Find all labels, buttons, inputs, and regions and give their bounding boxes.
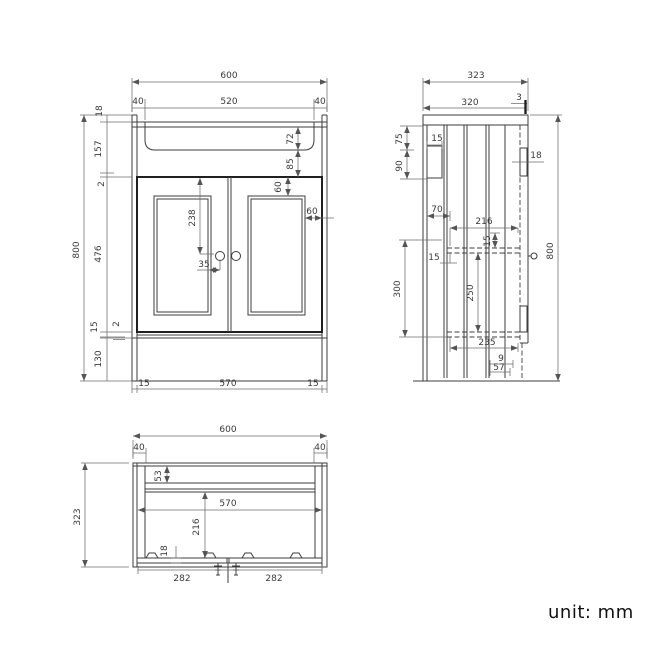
- wall-bracket: [427, 146, 442, 178]
- technical-drawing-page: 600 40 520 40 18 157 2 476 15 2 130 800 …: [0, 0, 650, 650]
- dim-side-back-lip: 3: [516, 93, 522, 103]
- dim-front-overhang-left: 40: [132, 97, 144, 107]
- dim-side-top-depth: 320: [461, 98, 478, 108]
- dim-front-basin-depth: 72: [286, 133, 296, 144]
- dim-side-bracket-height: 90: [395, 160, 405, 172]
- dim-front-bottom-rail: 15: [90, 321, 100, 332]
- hinge-bottom: [520, 306, 527, 332]
- dim-side-front-offset: 70: [431, 205, 443, 215]
- dim-plan-overall-width: 600: [219, 425, 236, 435]
- worktop-slab: [423, 115, 528, 125]
- knob-plan-symbols: [214, 563, 240, 575]
- dim-front-overhang-right: 40: [314, 97, 326, 107]
- dim-side-bracket-top: 75: [395, 133, 405, 144]
- left-door-panel: [154, 196, 211, 315]
- side-view: 323 320 3 75 15 90 70 15 300 216 15 250 …: [393, 71, 562, 381]
- dim-front-overall-width: 600: [220, 71, 237, 81]
- dim-front-basin-to-door: 85: [286, 158, 296, 169]
- front-view-dimensions: 600 40 520 40 18 157 2 476 15 2 130 800 …: [72, 71, 334, 393]
- front-view: 600 40 520 40 18 157 2 476 15 2 130 800 …: [72, 71, 334, 393]
- plan-view: 600 40 40 323 53 570 216 18 282 282: [73, 425, 327, 584]
- dim-side-shelf-depth: 216: [475, 217, 492, 227]
- dim-front-panel-inset-top: 60: [274, 181, 284, 193]
- dim-front-overall-height: 800: [72, 241, 82, 258]
- dim-side-shelf-drop: 300: [393, 280, 403, 297]
- dim-side-shelf-thickness: 15: [483, 235, 493, 246]
- dim-front-apron-height: 157: [94, 140, 104, 157]
- dim-plan-post-right: 40: [314, 443, 326, 453]
- dim-front-top-thickness: 18: [95, 105, 105, 117]
- dim-plan-post-left: 40: [133, 443, 145, 453]
- dim-front-internal-width: 570: [219, 379, 236, 389]
- dim-side-plinth-depth: 57: [493, 363, 504, 373]
- dim-front-handle-offset: 35: [198, 260, 209, 270]
- unit-label: unit: mm: [548, 602, 634, 623]
- dim-front-side-left: 15: [138, 379, 149, 389]
- dim-front-top-gap: 2: [97, 181, 107, 187]
- dim-plan-door-left: 282: [173, 574, 190, 584]
- dim-front-side-right: 15: [307, 379, 318, 389]
- dim-front-plinth-height: 130: [94, 350, 104, 367]
- dim-front-panel-inset-side: 60: [306, 207, 318, 217]
- door-front-outline: [137, 177, 322, 332]
- dim-plan-back-rail: 53: [154, 470, 164, 481]
- vanity-unit-drawing: 600 40 520 40 18 157 2 476 15 2 130 800 …: [0, 0, 650, 650]
- dim-front-bottom-gap: 2: [112, 321, 122, 327]
- dim-side-bottom-depth: 235: [478, 338, 495, 348]
- dim-plan-internal-depth: 216: [192, 518, 202, 535]
- dim-plan-door-thickness: 18: [160, 545, 170, 557]
- side-view-dimensions: 323 320 3 75 15 90 70 15 300 216 15 250 …: [393, 71, 562, 381]
- left-door-knob: [216, 252, 225, 261]
- right-door-panel: [248, 196, 305, 315]
- dim-side-overall-depth: 323: [467, 71, 484, 81]
- dim-plan-overall-depth: 323: [73, 508, 83, 525]
- plan-view-dimensions: 600 40 40 323 53 570 216 18 282 282: [73, 425, 327, 584]
- dim-side-overall-height: 800: [546, 242, 556, 259]
- dim-side-door-thickness: 18: [530, 151, 542, 161]
- knob-side-profile: [531, 253, 537, 259]
- dim-side-lower-height: 250: [466, 284, 476, 301]
- right-door-knob: [232, 252, 241, 261]
- door-center-gap: [228, 177, 231, 332]
- dim-plan-internal-width: 570: [219, 499, 236, 509]
- dim-front-door-height: 476: [94, 245, 104, 262]
- dim-side-shelf-gap: 15: [428, 253, 439, 263]
- dim-plan-door-right: 282: [265, 574, 282, 584]
- dim-front-basin-width: 520: [220, 97, 237, 107]
- dim-side-bracket-width: 15: [431, 134, 442, 144]
- dim-front-handle-drop: 238: [188, 209, 198, 226]
